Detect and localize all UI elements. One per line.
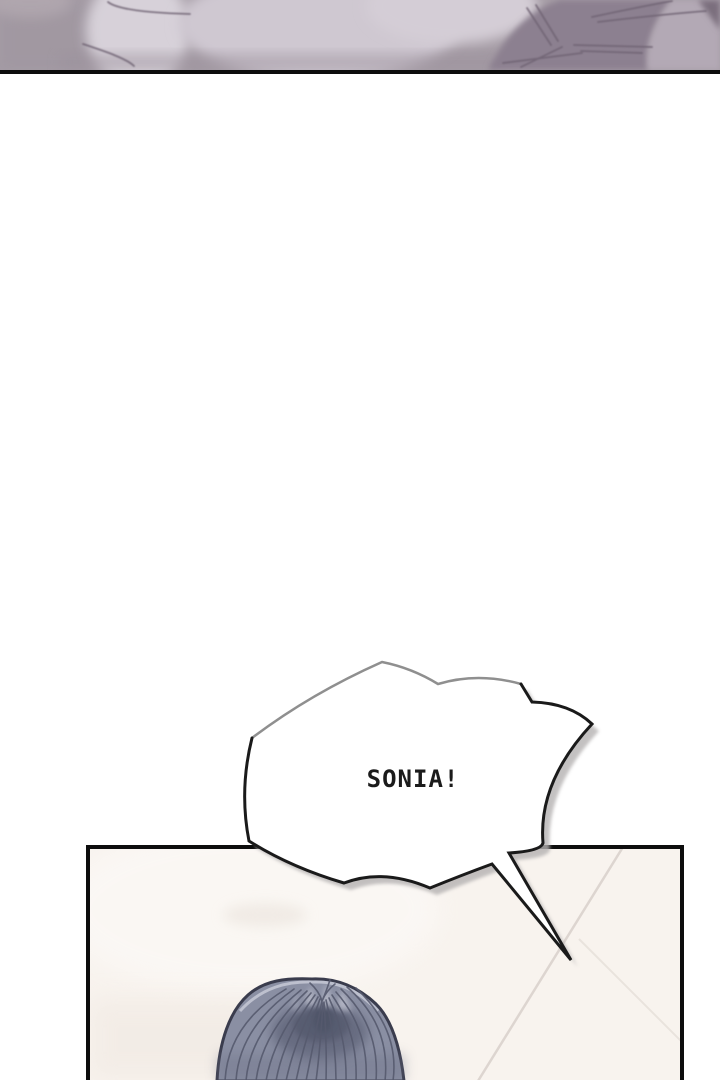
comic-page: SONIA! (0, 0, 720, 1080)
speech-text: SONIA! (367, 765, 460, 793)
speech-bubble: SONIA! (0, 0, 720, 1080)
